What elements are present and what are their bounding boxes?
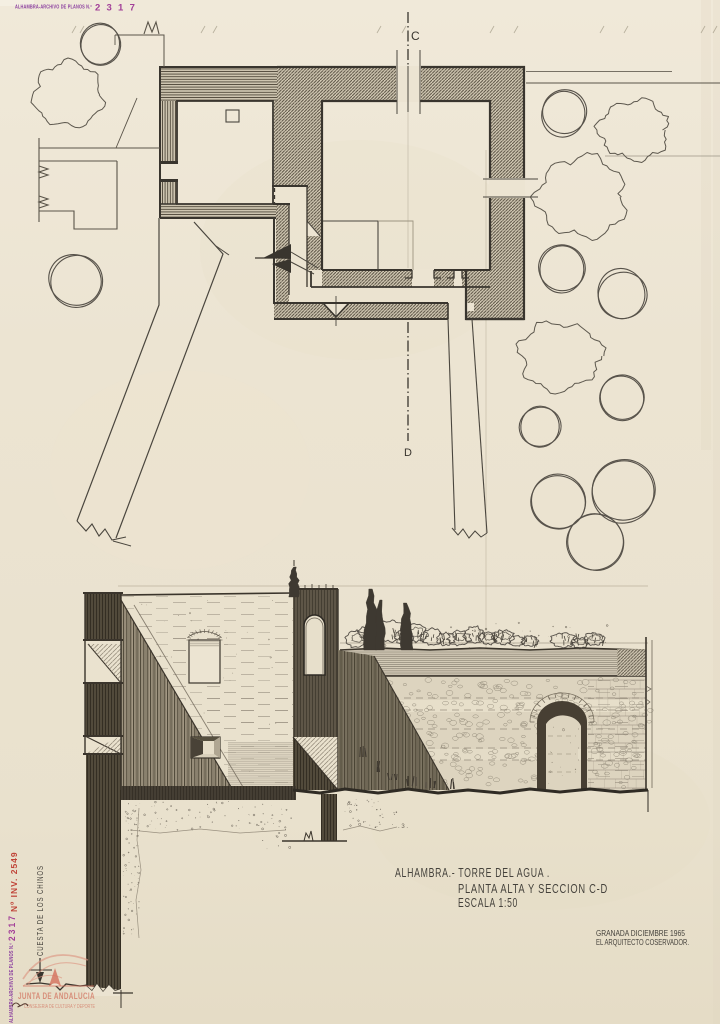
svg-text:EL ARQUITECTO COSERVADOR.: EL ARQUITECTO COSERVADOR. (596, 937, 689, 947)
svg-text:CONSEJERIA DE CULTURA Y DEPORT: CONSEJERIA DE CULTURA Y DEPORTE (24, 1004, 95, 1010)
svg-text:. 3 .: . 3 . (398, 824, 408, 830)
svg-text:Nº INV. 2549: Nº INV. 2549 (9, 851, 19, 912)
svg-text:C: C (411, 29, 420, 43)
svg-text:D: D (404, 447, 412, 459)
svg-text:2 3 1 7: 2 3 1 7 (95, 3, 137, 14)
svg-text:ESCALA 1:50: ESCALA 1:50 (458, 896, 518, 910)
svg-text:PLANTA ALTA Y SECCION C-D: PLANTA ALTA Y SECCION C-D (458, 882, 608, 896)
svg-text:2 3 1 7: 2 3 1 7 (7, 916, 17, 941)
svg-text:ALHAMBRA.- TORRE DEL AGUA .: ALHAMBRA.- TORRE DEL AGUA . (395, 866, 550, 880)
svg-text:JUNTA DE ANDALUCIA: JUNTA DE ANDALUCIA (18, 991, 95, 1001)
svg-text:CUESTA DE LOS CHINOS: CUESTA DE LOS CHINOS (36, 865, 45, 956)
svg-text:ALHAMBRA-ARCHIVO DE PLANOS N.º: ALHAMBRA-ARCHIVO DE PLANOS N.º (15, 5, 92, 11)
svg-text:ALHAMBRA-ARCHIVO DE PLANOS N.º: ALHAMBRA-ARCHIVO DE PLANOS N.º (9, 943, 15, 1023)
